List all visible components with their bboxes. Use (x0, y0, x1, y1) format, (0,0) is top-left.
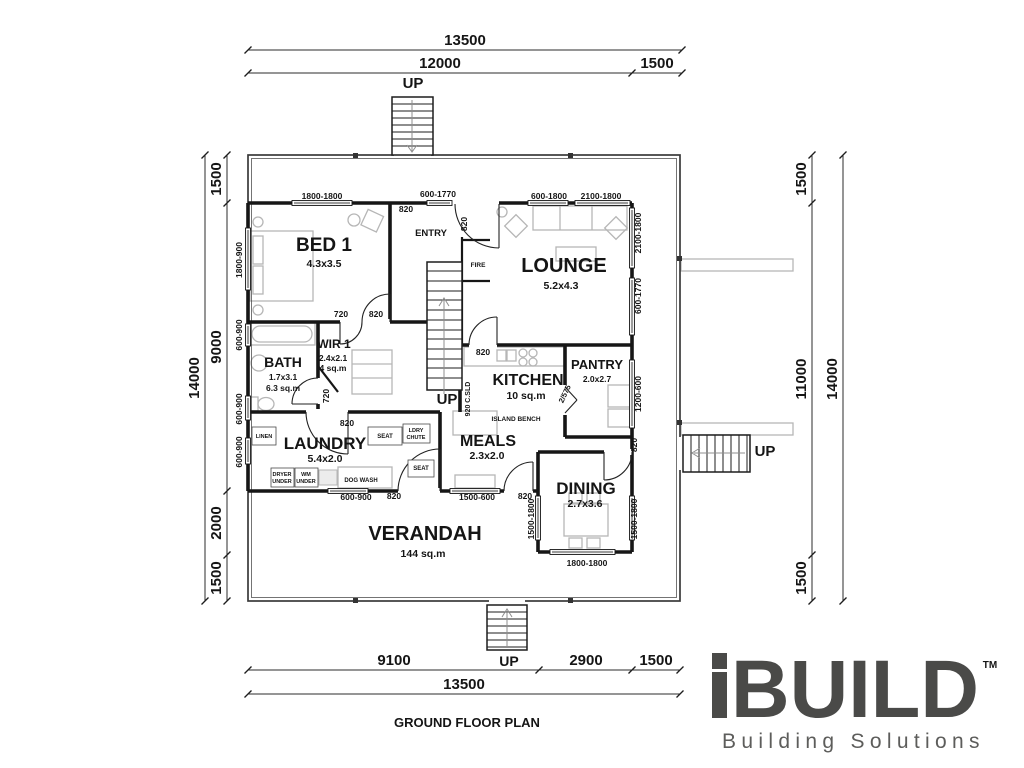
pantry-shelf (608, 385, 630, 407)
win-dim: 1500-600 (459, 492, 495, 502)
stairs-top-up-label: UP (403, 75, 424, 92)
stairs-top (392, 97, 433, 158)
laundry-sink (319, 470, 337, 485)
logo-brand-text: BUILD (731, 644, 979, 735)
room-meals: MEALS (460, 433, 516, 450)
dim-right-overall: 14000 (824, 358, 841, 400)
armchair (361, 209, 384, 232)
walkway (681, 259, 793, 271)
dim-left-top: 1500 (208, 162, 225, 195)
win-dim: 1500-1800 (629, 498, 639, 539)
door-dim: 820 (387, 491, 401, 501)
room-bed1: BED 1 (296, 235, 352, 256)
win-dim: 600-900 (234, 436, 244, 467)
room-verandah: VERANDAH (368, 523, 481, 545)
armchair (505, 215, 528, 238)
armchair (605, 217, 628, 240)
side-table (253, 305, 263, 315)
dim-bottom-overall: 13500 (443, 676, 485, 693)
door-dim: 820 (340, 418, 354, 428)
dim-bottom-mid: 2900 (569, 652, 602, 669)
side-table (253, 217, 263, 227)
dim-chain-top: 13500 12000 1500 UP (245, 32, 686, 92)
stairs-bottom-up-label: UP (499, 653, 518, 669)
door-dim: 820 (459, 217, 469, 231)
win-dim: 600-1800 (531, 191, 567, 201)
floor-plan-canvas: 13500 12000 1500 UP 9100 2900 1500 UP 13… (0, 0, 1024, 768)
stairs-bottom (487, 599, 527, 651)
dryer-label-2: UNDER (272, 479, 292, 485)
dog-wash-label: DOG WASH (344, 478, 377, 484)
room-kitchen-area: 10 sq.m (506, 390, 545, 402)
win-dim: 2100-1800 (633, 212, 643, 253)
stairs-right (678, 435, 751, 472)
stairs-central (427, 262, 462, 394)
robe (352, 350, 392, 394)
wm-label-1: WM (301, 472, 311, 478)
plan-title: GROUND FLOOR PLAN (394, 715, 540, 730)
room-bath: BATH (264, 354, 302, 370)
dim-right-main: 11000 (793, 359, 810, 400)
dim-chain-right: 1500 11000 1500 14000 (793, 152, 847, 605)
round-table (348, 214, 360, 226)
ldry-chute-label-2: CHUTE (407, 435, 426, 441)
logo-i-glyph (712, 653, 727, 718)
logo-tagline: Building Solutions (722, 730, 984, 753)
win-dim: 1800-1800 (567, 558, 608, 568)
seat-label: SEAT (413, 466, 429, 472)
dim-chain-left: 14000 1500 9000 2000 1500 (186, 152, 231, 605)
dim-top-main: 12000 (419, 55, 461, 72)
room-bath-size: 1.7x3.1 (269, 372, 298, 382)
room-lounge: LOUNGE (521, 255, 607, 277)
sofa (533, 206, 627, 230)
fireplace-label: FIRE (471, 262, 486, 269)
dim-bottom-right: 1500 (639, 652, 672, 669)
room-bath-area: 6.3 sq.m (266, 383, 300, 393)
door-dim: 820 (399, 204, 413, 214)
dim-left-bottom: 1500 (208, 561, 225, 594)
win-dim: 600-1770 (633, 278, 643, 314)
win-dim: 2100-1800 (581, 191, 622, 201)
room-wir1-size: 2.4x2.1 (319, 353, 348, 363)
fireplace (462, 237, 490, 307)
win-dim: 600-900 (234, 319, 244, 350)
room-dining-size: 2.7x3.6 (567, 498, 602, 510)
walkway (681, 423, 793, 435)
room-laundry: LAUNDRY (284, 434, 367, 453)
win-dim: 600-1770 (420, 189, 456, 199)
cavity-slider-label: 920 C.SLD (465, 382, 472, 417)
dryer-label-1: DRYER (272, 472, 291, 478)
win-dim: 600-900 (234, 393, 244, 424)
dim-left-main: 9000 (208, 330, 225, 363)
room-wir1: WIR 1 (317, 337, 351, 351)
room-entry: ENTRY (415, 228, 448, 239)
room-bed1-size: 4.3x3.5 (306, 258, 341, 270)
dim-left-overall: 14000 (186, 357, 203, 399)
room-verandah-area: 144 sq.m (401, 548, 446, 560)
dim-right-top: 1500 (793, 162, 810, 195)
room-labels: BED 1 4.3x3.5 LOUNGE 5.2x4.3 ENTRY FIRE … (256, 228, 776, 560)
room-dining: DINING (556, 479, 616, 498)
sink (497, 350, 506, 361)
win-dim: 1200-600 (633, 376, 643, 412)
stairs-central-up-label: UP (437, 391, 458, 408)
room-meals-size: 2.3x2.0 (469, 450, 504, 462)
dim-left-lower: 2000 (208, 506, 225, 539)
door-dim: 820 (476, 347, 490, 357)
dim-right-bottom: 1500 (793, 561, 810, 594)
island-bench-label: ISLAND BENCH (491, 416, 540, 423)
room-pantry-size: 2.0x2.7 (583, 374, 612, 384)
room-lounge-size: 5.2x4.3 (543, 280, 578, 292)
room-kitchen: KITCHEN (492, 372, 563, 389)
door-dim: 720 (334, 309, 348, 319)
seat-label: SEAT (377, 434, 393, 440)
dim-top-overall: 13500 (444, 32, 486, 49)
ldry-chute-label-1: LDRY (409, 428, 424, 434)
door-dim: 820 (629, 438, 639, 452)
island-bench (453, 411, 497, 435)
room-wir1-area: 4 sq.m (320, 363, 347, 373)
dim-bottom-left: 9100 (377, 652, 410, 669)
wm-label-2: UNDER (296, 479, 316, 485)
ibuild-logo: BUILD TM Building Solutions (712, 644, 997, 753)
meals-bench (455, 475, 495, 488)
linen-label: LINEN (256, 434, 273, 440)
logo-tm: TM (983, 660, 997, 671)
win-dim: 1800-900 (234, 242, 244, 278)
stairs-right-up-label: UP (755, 443, 776, 460)
dim-top-right: 1500 (640, 55, 673, 72)
door-dim: 720 (321, 389, 331, 403)
room-pantry: PANTRY (571, 357, 623, 372)
win-dim: 1800-1800 (302, 191, 343, 201)
door-dim: 820 (369, 309, 383, 319)
dim-chain-bottom: 9100 2900 1500 UP 13500 (245, 652, 684, 698)
win-dim: 600-900 (340, 492, 371, 502)
room-laundry-size: 5.4x2.0 (307, 453, 342, 465)
win-dim: 1500-1800 (526, 498, 536, 539)
ground-floor-plan-svg: 13500 12000 1500 UP 9100 2900 1500 UP 13… (0, 0, 1024, 768)
